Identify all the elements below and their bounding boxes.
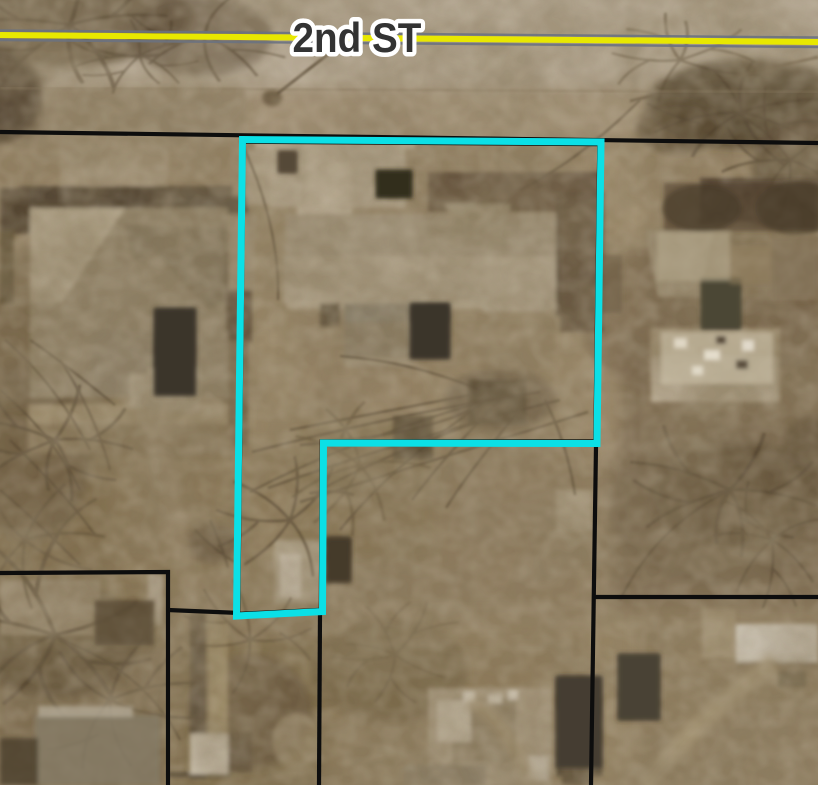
svg-text:2nd ST: 2nd ST [293, 13, 422, 61]
